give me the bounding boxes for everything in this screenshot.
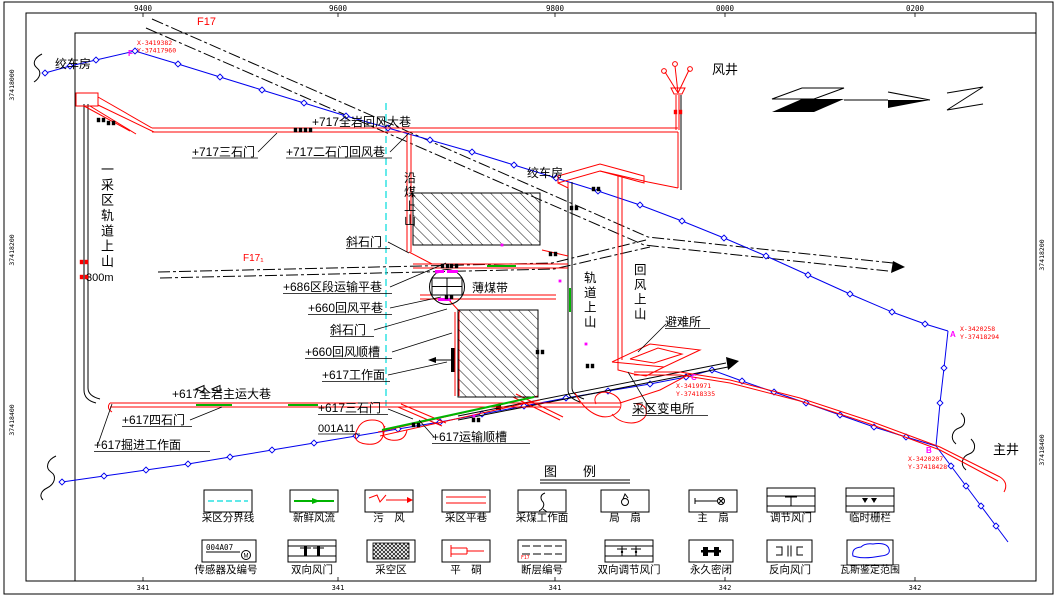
legend-item-label: 采区平巷 xyxy=(445,512,487,524)
roadways xyxy=(76,62,1006,492)
legend-item-label: 采空区 xyxy=(375,563,407,576)
legend-item-label: 污 风 xyxy=(373,512,405,524)
ruler-tick: 9400 xyxy=(134,4,153,13)
label-crosscut4-617: +617四石门 xyxy=(122,412,185,427)
ruler-tick: 0000 xyxy=(716,4,735,13)
survey-lines xyxy=(45,51,1008,542)
label-incline-crosscut-upper: 斜石门 xyxy=(346,234,382,249)
legend-item-label: 临时栅栏 xyxy=(849,511,891,524)
label-main-shaft: 主井 xyxy=(993,442,1019,457)
ruler-tick: 37418000 xyxy=(8,69,16,100)
label-transport-gateway-617: +617运输顺槽 xyxy=(432,429,507,444)
label-incline-length: 300m xyxy=(86,272,114,284)
point-b-y: Y-37418428 xyxy=(908,463,947,471)
label-working-face-617: +617工作面 xyxy=(322,368,385,382)
legend-item-label: 采区分界线 xyxy=(202,511,255,524)
ruler-tick: 9600 xyxy=(329,4,348,13)
ruler-tick: 341 xyxy=(332,584,345,592)
sheet-frame: 9400 9600 9800 0000 0200 341 341 341 342… xyxy=(4,2,1053,594)
legend-item-label: 断层编号 xyxy=(521,563,563,576)
label-return-gateway-660: +660回风顺槽 xyxy=(305,345,380,359)
ruler-tick: 9800 xyxy=(546,4,565,13)
label-crosscut3-617: +617三石门 xyxy=(318,400,381,415)
ruler-tick: 342 xyxy=(909,584,922,592)
label-crosscut3-717: +717三石门 xyxy=(192,144,255,159)
legend-fault-code: F17 xyxy=(521,555,530,561)
legend-sensor-code: 004A07 xyxy=(206,543,233,552)
point-c-letter: C xyxy=(691,373,697,382)
legend: 图 例 采区分界线 xyxy=(195,464,901,576)
fan-icon xyxy=(662,62,693,94)
north-arrow-icon xyxy=(772,87,983,112)
label-winch-house-center: 绞车房 xyxy=(527,165,563,180)
point-a-letter: A xyxy=(950,330,956,339)
point-c-x: X-3419971 xyxy=(676,382,711,390)
legend-item-label: 采煤工作面 xyxy=(516,511,569,524)
label-panel-id: 001A11 xyxy=(318,423,355,435)
label-fault-f17: F17 xyxy=(197,16,216,28)
legend-item-label: 传感器及编号 xyxy=(195,563,258,576)
label-transport-level-686: +686区段运输平巷 xyxy=(283,279,382,294)
working-face-marker xyxy=(428,348,455,372)
label-heading-face-617: +617掘进工作面 xyxy=(94,437,181,452)
legend-item-label: 永久密闭 xyxy=(690,563,732,576)
label-substation: 采区变电所 xyxy=(632,401,695,416)
drawing-sheet: 9400 9600 9800 0000 0200 341 341 341 342… xyxy=(0,0,1057,597)
point-b-x: X-3420207 xyxy=(908,455,943,463)
point-b-letter: B xyxy=(926,446,932,455)
mine-ventilation-plan: 9400 9600 9800 0000 0200 341 341 341 342… xyxy=(0,0,1057,597)
legend-item-label: 瓦斯鉴定范围 xyxy=(840,563,900,576)
legend-item-label: 调节风门 xyxy=(770,511,812,524)
ruler-tick: 37418400 xyxy=(1038,434,1046,465)
label-return-incline: 回风上山 xyxy=(634,263,647,321)
label-return-main-717: +717全岩回风大巷 xyxy=(312,114,411,129)
label-main-haulage-617: +617全岩主运大巷 xyxy=(172,386,271,401)
legend-item-label: 平 硐 xyxy=(450,564,482,576)
ruler-tick: 37418400 xyxy=(8,404,16,435)
ruler-tick: 37418200 xyxy=(8,234,16,265)
point-f-y: Y-37417960 xyxy=(137,47,176,55)
point-a-y: Y-37418294 xyxy=(960,333,999,341)
label-rail-incline-center: 轨道上山 xyxy=(584,271,597,329)
ruler-tick: 37418200 xyxy=(1038,239,1046,270)
label-return-level-660: +660回风平巷 xyxy=(308,301,383,315)
ruler-tick: 0200 xyxy=(906,4,925,13)
label-district1-rail-incline: 一采区轨道上山 xyxy=(101,162,114,269)
legend-title: 图 例 xyxy=(544,464,596,479)
label-crosscut2-return-717: +717二石门回风巷 xyxy=(286,144,385,159)
legend-sensor-letter: M xyxy=(244,554,249,560)
ruler-tick: 341 xyxy=(137,584,150,592)
legend-item-label: 新鲜风流 xyxy=(293,511,335,524)
legend-item-label: 双向风门 xyxy=(291,563,333,576)
label-coal-incline: 沿煤上山 xyxy=(404,171,416,227)
label-fault-f17-1: F17₁ xyxy=(243,253,264,264)
borehole-symbol xyxy=(430,270,465,305)
ruler-tick: 341 xyxy=(549,584,562,592)
label-air-shaft: 风井 xyxy=(712,62,738,77)
label-incline-crosscut-lower: 斜石门 xyxy=(330,322,366,337)
point-a-x: X-3420258 xyxy=(960,325,995,333)
legend-item-label: 反向风门 xyxy=(769,563,811,576)
label-refuge-chamber: 避难所 xyxy=(665,315,701,329)
point-c-y: Y-37418335 xyxy=(676,390,715,398)
legend-item-label: 局 扇 xyxy=(609,511,641,524)
label-winch-house-top: 绞车房 xyxy=(55,56,91,71)
ruler-tick: 342 xyxy=(719,584,732,592)
legend-item-label: 双向调节风门 xyxy=(598,563,661,576)
label-thin-coal-belt: 薄煤带 xyxy=(472,280,508,295)
legend-item-label: 主 扇 xyxy=(697,511,729,524)
point-f-letter: F xyxy=(128,49,133,58)
